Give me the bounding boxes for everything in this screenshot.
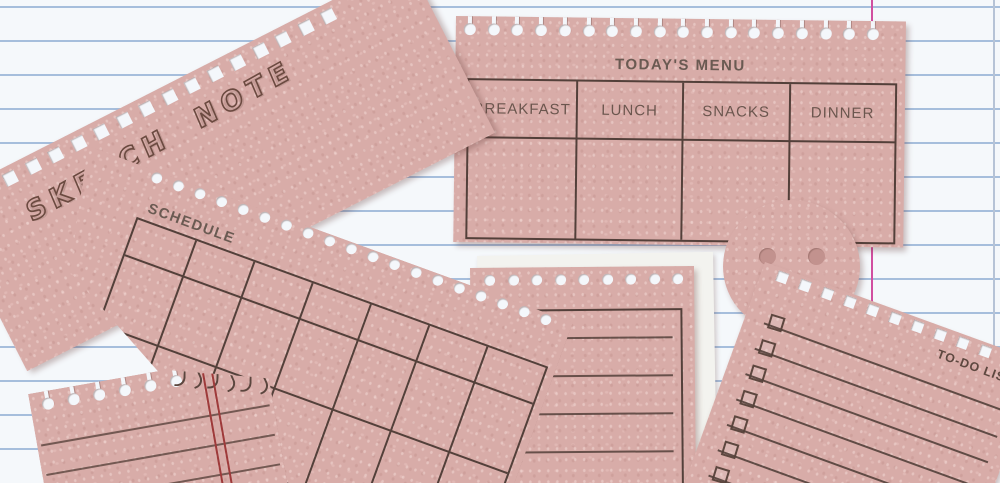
punch-hole xyxy=(649,273,660,284)
punch-hole xyxy=(92,123,109,140)
punch-hole xyxy=(274,31,291,48)
punch-hole xyxy=(843,295,857,309)
punch-hole xyxy=(150,171,164,185)
punch-hole xyxy=(729,19,733,30)
punch-hole xyxy=(752,20,756,31)
punch-hole xyxy=(531,274,542,285)
punch-hole xyxy=(171,179,185,193)
menu-cell-breakfast xyxy=(467,136,575,238)
punch-hole xyxy=(215,194,229,208)
torn-spiral-curl xyxy=(240,375,252,392)
punch-hole xyxy=(911,320,925,334)
punch-hole xyxy=(301,226,315,240)
punch-hole xyxy=(705,19,709,30)
punch-hole xyxy=(847,21,851,32)
punch-hole xyxy=(183,77,200,94)
todo-row-line xyxy=(745,373,988,463)
punch-hole xyxy=(323,234,337,248)
punch-hole xyxy=(146,372,152,385)
punch-hole xyxy=(452,281,466,295)
punch-hole xyxy=(978,344,992,358)
ruled-line xyxy=(522,450,674,453)
punch-hole xyxy=(206,65,223,82)
punch-hole xyxy=(95,381,101,394)
punch-hole xyxy=(115,112,132,129)
menu-column-dinner: DINNER xyxy=(788,84,895,141)
punch-hole xyxy=(193,187,207,201)
menu-title: TODAY'S MENU xyxy=(455,54,905,76)
punch-hole xyxy=(602,274,613,285)
menu-column-lunch: LUNCH xyxy=(575,81,682,138)
torn-spiral-curl xyxy=(174,369,186,386)
punch-hole xyxy=(2,169,19,186)
punch-hole xyxy=(823,20,827,31)
punch-hole xyxy=(121,377,127,390)
punch-hole xyxy=(865,303,879,317)
punch-hole xyxy=(279,218,293,232)
punch-hole xyxy=(468,16,472,27)
punch-hole xyxy=(431,273,445,287)
punch-hole xyxy=(161,88,178,105)
punch-hole xyxy=(563,17,567,28)
punch-hole xyxy=(820,287,834,301)
punch-hole xyxy=(320,7,337,24)
punch-hole xyxy=(775,270,789,284)
menu-column-snacks: SNACKS xyxy=(682,83,789,140)
punch-hole xyxy=(871,21,875,32)
todays-menu-page: TODAY'S MENU BREAKFAST LUNCH SNACKS DINN… xyxy=(453,16,906,247)
punch-hole xyxy=(258,210,272,224)
punch-hole xyxy=(539,312,553,326)
todo-row-line xyxy=(708,475,951,483)
punch-hole xyxy=(776,20,780,31)
punch-hole xyxy=(366,250,380,264)
punch-hole xyxy=(484,275,495,286)
punch-hole xyxy=(798,278,812,292)
punch-hole xyxy=(229,54,246,71)
schedule-column-line xyxy=(361,325,430,483)
menu-cell-lunch xyxy=(574,137,682,239)
punch-hole xyxy=(555,274,566,285)
punch-hole xyxy=(517,305,531,319)
punch-hole xyxy=(495,297,509,311)
punch-hole xyxy=(70,135,87,152)
punch-hole xyxy=(800,20,804,31)
punch-hole xyxy=(69,386,75,399)
punch-hole xyxy=(474,289,488,303)
punch-hole xyxy=(625,274,636,285)
punch-hole xyxy=(24,158,41,175)
punch-hole xyxy=(610,18,614,29)
punch-hole xyxy=(933,328,947,342)
punch-hole xyxy=(47,146,64,163)
punch-hole xyxy=(586,18,590,29)
memo-red-margin-line xyxy=(202,372,240,483)
punch-hole xyxy=(657,18,661,29)
punch-hole xyxy=(138,100,155,117)
punch-hole xyxy=(539,17,543,28)
punch-hole xyxy=(578,274,589,285)
punch-hole xyxy=(344,242,358,256)
ruled-line xyxy=(521,412,673,415)
punch-hole xyxy=(888,311,902,325)
punch-hole xyxy=(515,17,519,28)
punch-hole xyxy=(492,16,496,27)
punch-hole xyxy=(672,273,683,284)
punch-hole xyxy=(409,265,423,279)
punch-hole xyxy=(956,336,970,350)
punch-hole xyxy=(508,275,519,286)
punch-hole xyxy=(236,202,250,216)
punch-hole xyxy=(681,19,685,30)
punch-hole xyxy=(634,18,638,29)
punch-hole xyxy=(297,19,314,36)
todo-row-line xyxy=(727,424,970,483)
punch-hole xyxy=(387,257,401,271)
punch-hole xyxy=(44,391,50,404)
punch-hole xyxy=(251,42,268,59)
tag-dot-right xyxy=(808,248,825,265)
scrapbook-canvas: TODAY'S MENU BREAKFAST LUNCH SNACKS DINN… xyxy=(0,0,1000,483)
